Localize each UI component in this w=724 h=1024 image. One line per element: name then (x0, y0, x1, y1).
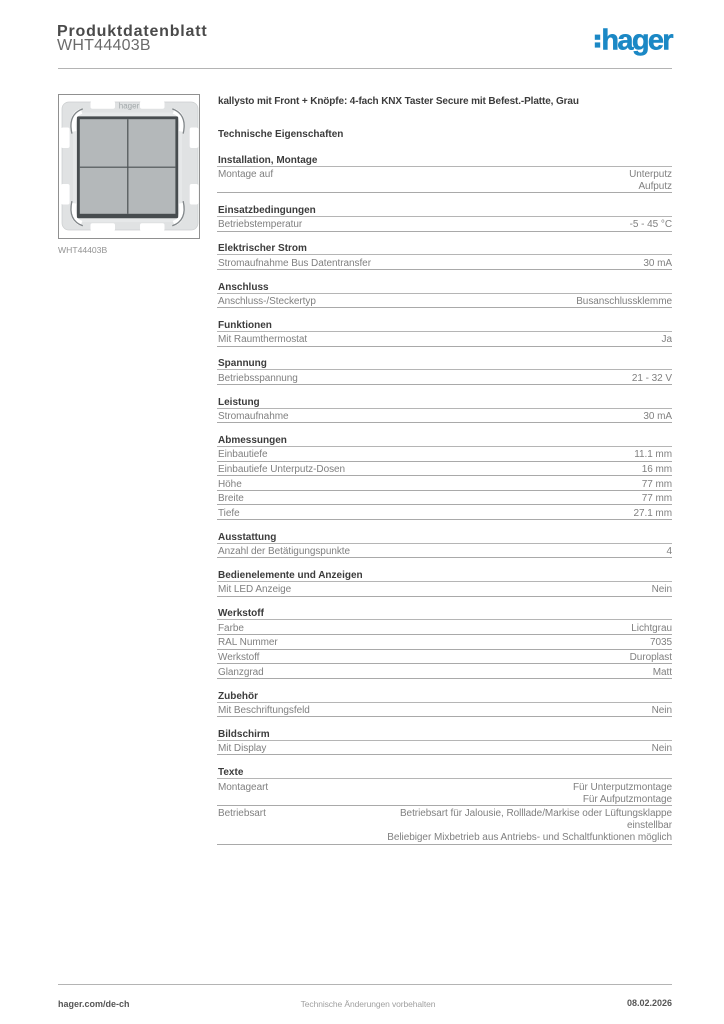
svg-text:hager: hager (601, 24, 673, 56)
svg-text:hager: hager (119, 101, 140, 110)
